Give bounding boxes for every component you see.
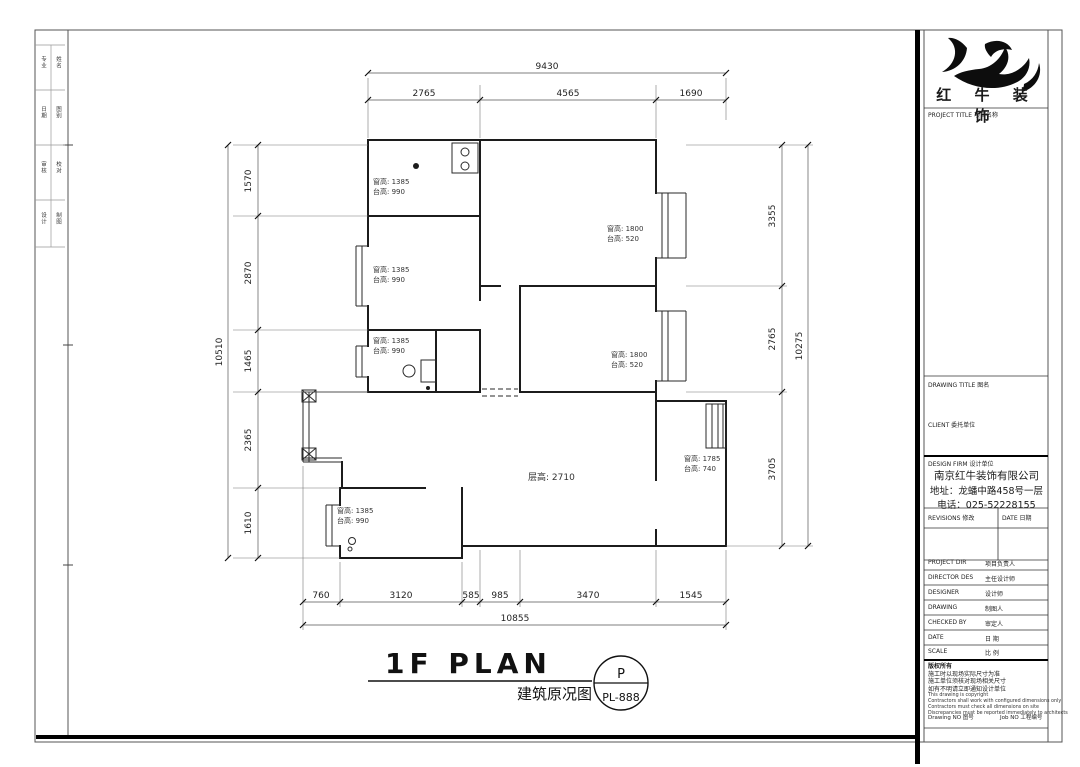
note-line: 如有不明请立即通知设计单位 xyxy=(928,686,1046,694)
dim-right-seg-1: 2765 xyxy=(768,328,778,351)
dim-texts: 9430 2765 4565 1690 10510 1570 2870 1465… xyxy=(215,62,805,624)
room-label-2-line1: 窗高: 1385 xyxy=(373,336,409,345)
room-labels: 窗高: 1385 台高: 990 窗高: 1385 台高: 990 窗高: 13… xyxy=(337,177,720,525)
dim-bottom-seg-0: 760 xyxy=(312,591,329,601)
strip-cell-2a: 审核 xyxy=(39,161,47,174)
room-label-0-line2: 台高: 990 xyxy=(373,187,405,196)
strip-cell-2b: 校对 xyxy=(54,161,62,174)
client-row: CLIENT 委托单位 xyxy=(928,420,975,429)
dim-left-seg-0: 1570 xyxy=(244,169,254,192)
date-col-label: DATE 日期 xyxy=(1002,513,1032,522)
dim-right-seg-2: 3705 xyxy=(768,458,778,481)
dim-bottom-total: 10855 xyxy=(501,614,530,624)
plan-title-block: 1F PLAN 建筑原况图 P PL-888 xyxy=(368,647,648,710)
revisions-label: REVISIONS 修改 xyxy=(928,513,974,522)
floorplan-svg: 9430 2765 4565 1690 10510 1570 2870 1465… xyxy=(0,0,1080,767)
row-checked-en: CHECKED BY xyxy=(928,619,966,626)
strip-cell-1b: 图别 xyxy=(54,106,62,119)
strip-cell-1a: 日期 xyxy=(39,106,47,119)
copyright-notes: 版权所有 施工时以现场实际尺寸为准 施工单位须核对现场相关尺寸 如有不明请立即通… xyxy=(928,663,1046,717)
drawing-sheet: 9430 2765 4565 1690 10510 1570 2870 1465… xyxy=(0,0,1080,767)
row-date-en: DATE xyxy=(928,634,944,641)
row-project-dir-en: PROJECT DIR xyxy=(928,559,966,566)
company-address: 地址：龙蟠中路458号一层 xyxy=(925,483,1048,497)
row-drawing-en: DRAWING xyxy=(928,604,957,611)
drawing-no-label: Drawing NO 图号 xyxy=(928,713,974,721)
room-label-6-line1: 窗高: 1385 xyxy=(337,506,373,515)
row-project-dir-zh: 项目负责人 xyxy=(985,559,1015,568)
dim-bottom-seg-2: 585 xyxy=(462,591,479,601)
logo-company-name: 红 牛 装 饰 xyxy=(925,84,1048,126)
room-label-3-line1: 窗高: 1800 xyxy=(607,224,643,233)
dim-ticks xyxy=(225,70,811,628)
dim-left-seg-1: 2870 xyxy=(244,261,254,284)
note-line: 施工单位须核对现场相关尺寸 xyxy=(928,678,1046,686)
room-label-4-line2: 台高: 520 xyxy=(611,360,643,369)
dim-top-seg-2: 1690 xyxy=(680,89,703,99)
project-title-row: PROJECT TITLE 项目名称 xyxy=(928,110,998,119)
row-scale-zh: 比 例 xyxy=(985,648,999,657)
row-drawing-zh: 制图人 xyxy=(985,604,1003,613)
company-name: 南京红牛装饰有限公司 xyxy=(925,468,1048,483)
room-label-4-line1: 窗高: 1800 xyxy=(611,350,647,359)
strip-cell-3b: 制图 xyxy=(54,212,62,225)
design-firm-row: DESIGN FIRM 设计单位 xyxy=(928,459,994,468)
plan-title-sub: 建筑原况图 xyxy=(517,685,592,703)
badge-number: PL-888 xyxy=(602,691,640,704)
strip-cell-3a: 设计 xyxy=(39,212,47,225)
dim-top-total: 9430 xyxy=(536,62,559,72)
note-line: 版权所有 xyxy=(928,663,1046,671)
dim-bottom-seg-3: 985 xyxy=(491,591,508,601)
dim-top-seg-1: 4565 xyxy=(557,89,580,99)
strip-cell-0a: 专业 xyxy=(39,56,47,69)
row-designer-en: DESIGNER xyxy=(928,589,959,596)
company-phone: 电话：025-52228155 xyxy=(925,497,1048,511)
room-label-1-line2: 台高: 990 xyxy=(373,275,405,284)
dim-right-total: 10275 xyxy=(795,332,805,361)
dim-bottom-seg-4: 3470 xyxy=(577,591,600,601)
room-label-5-line2: 台高: 740 xyxy=(684,464,716,473)
dim-right-seg-0: 3355 xyxy=(768,205,778,228)
plan-windows xyxy=(302,193,726,546)
row-date-zh: 日 期 xyxy=(985,634,999,643)
room-label-3-line2: 台高: 520 xyxy=(607,234,639,243)
room-label-2-line2: 台高: 990 xyxy=(373,346,405,355)
row-designer-zh: 设计师 xyxy=(985,589,1003,598)
job-no-label: Job NO 工程编号 xyxy=(1000,713,1042,721)
dim-top-seg-0: 2765 xyxy=(413,89,436,99)
dim-bottom-seg-5: 1545 xyxy=(680,591,703,601)
room-label-1-line1: 窗高: 1385 xyxy=(373,265,409,274)
sheet-frame xyxy=(35,30,1062,742)
plan-opening-dashed xyxy=(482,389,518,396)
dim-left-total: 10510 xyxy=(215,337,225,366)
note-line: 施工时以现场实际尺寸为准 xyxy=(928,671,1046,679)
dim-left-seg-3: 2365 xyxy=(244,429,254,452)
row-checked-zh: 审定人 xyxy=(985,619,1003,628)
room-label-5-line1: 窗高: 1785 xyxy=(684,454,720,463)
row-scale-en: SCALE xyxy=(928,648,947,655)
dim-left-seg-2: 1465 xyxy=(244,350,254,373)
ceiling-height-label: 层高: 2710 xyxy=(528,471,575,483)
row-director-en: DIRECTOR DES xyxy=(928,574,973,581)
dim-left-seg-4: 1610 xyxy=(244,511,254,534)
drawing-number-badge: P PL-888 xyxy=(594,656,648,710)
row-director-zh: 主任设计师 xyxy=(985,574,1015,583)
dim-bottom-seg-1: 3120 xyxy=(390,591,413,601)
plan-title-main: 1F PLAN xyxy=(385,647,552,680)
badge-letter: P xyxy=(617,667,625,682)
strip-cell-0b: 姓名 xyxy=(54,56,62,69)
dim-lines xyxy=(228,73,808,625)
dim-extension-lines xyxy=(233,78,813,630)
drawing-title-row: DRAWING TITLE 图名 xyxy=(928,380,989,389)
room-label-0-line1: 窗高: 1385 xyxy=(373,177,409,186)
room-label-6-line2: 台高: 990 xyxy=(337,516,369,525)
